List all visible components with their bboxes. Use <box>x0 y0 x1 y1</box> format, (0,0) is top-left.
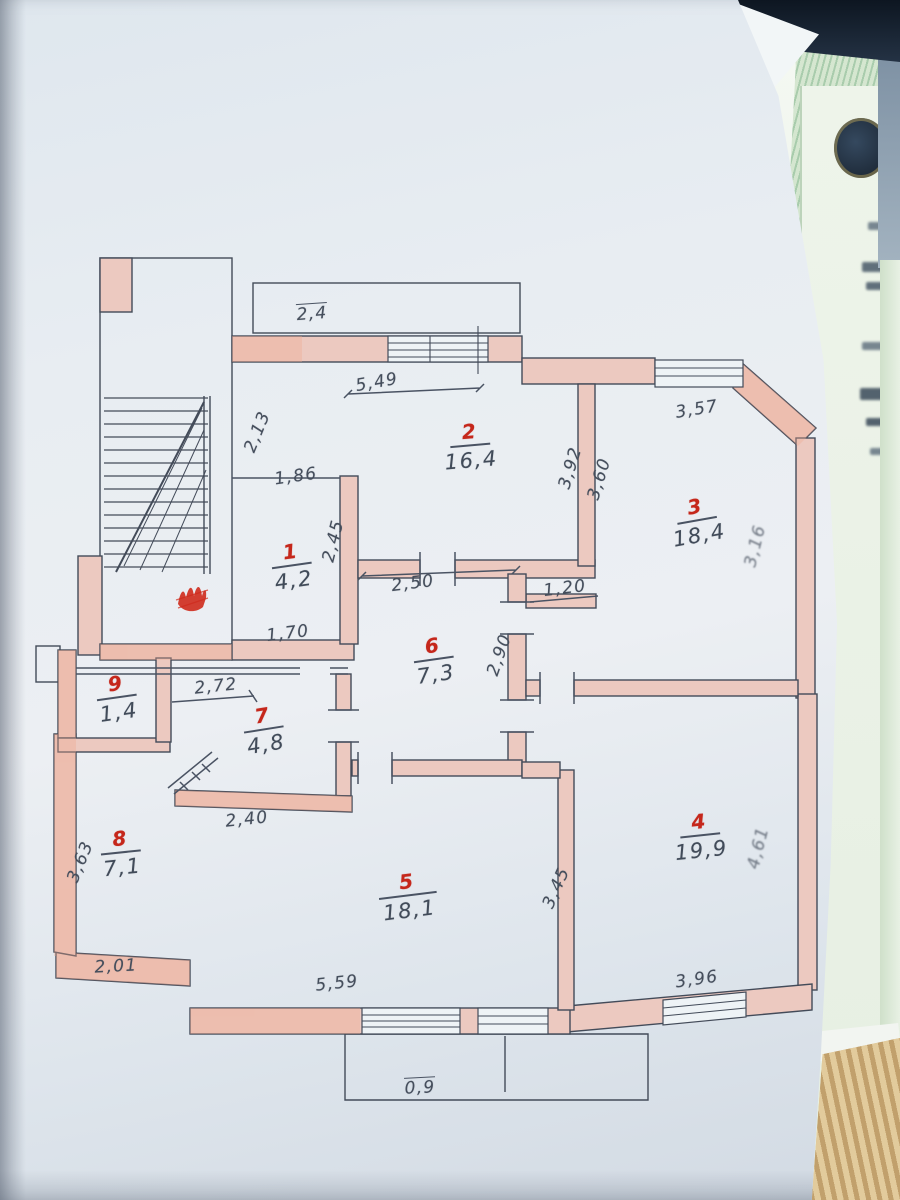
room-label-4: 4 19,9 <box>671 809 729 865</box>
floor-plan: 1 4,2 2 16,4 3 18,4 4 19,9 5 18,1 6 7,3 <box>0 0 900 1200</box>
dim-balcony-bottom: 0,9 <box>404 1076 436 1098</box>
room-label-3: 3 18,4 <box>666 492 727 552</box>
room-number: 6 <box>411 633 454 663</box>
room-area: 16,4 <box>444 446 499 475</box>
room-number: 8 <box>98 826 140 855</box>
paper-stack-corner <box>810 1038 900 1200</box>
floor-plan-drawing <box>0 0 900 1200</box>
room-label-5: 5 18,1 <box>376 868 440 926</box>
room-label-7: 7 4,8 <box>240 703 287 760</box>
room-label-9: 9 1,4 <box>94 671 141 727</box>
dim-room7-top: 2,72 <box>194 676 239 697</box>
dim-balcony-top: 2,4 <box>296 302 328 324</box>
room-label-2: 2 16,4 <box>441 419 498 475</box>
entrance-mark-scribble <box>178 587 206 611</box>
dim-room8-bottom: 2,01 <box>94 957 138 976</box>
room-number: 9 <box>94 671 137 701</box>
room-area: 7,1 <box>101 853 143 881</box>
floorplan-page: 1 4,2 2 16,4 3 18,4 4 19,9 5 18,1 6 7,3 <box>0 0 900 1200</box>
dim-room5-bottom: 5,59 <box>315 973 360 994</box>
photo-of-floorplan: 1 4,2 2 16,4 3 18,4 4 19,9 5 18,1 6 7,3 <box>0 0 900 1200</box>
room-label-8: 8 7,1 <box>98 826 143 881</box>
room-label-1: 1 4,2 <box>269 539 316 595</box>
dim-room5-topleft: 2,40 <box>225 809 270 830</box>
room-number: 4 <box>677 809 719 838</box>
room-label-6: 6 7,3 <box>411 633 458 689</box>
room-number: 7 <box>240 703 283 734</box>
room-number: 1 <box>269 539 312 569</box>
room-number: 2 <box>448 420 490 448</box>
